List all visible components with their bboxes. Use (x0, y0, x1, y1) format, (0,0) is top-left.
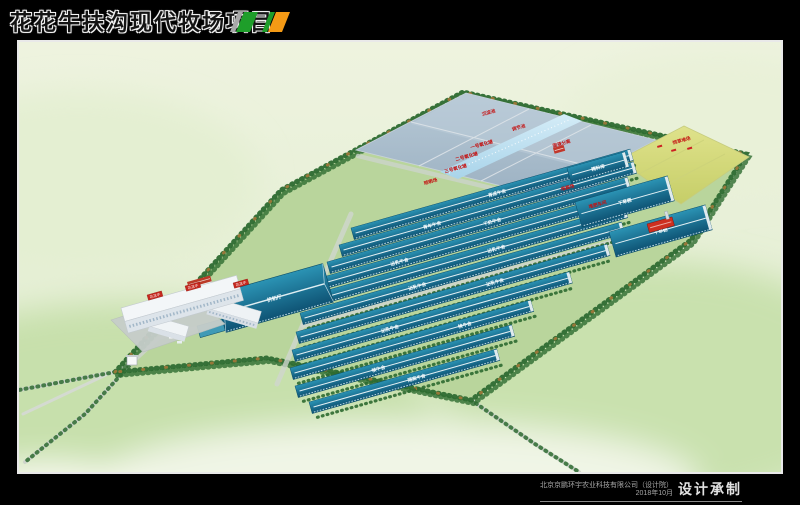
vehicle (177, 341, 182, 344)
logo-stripes (228, 10, 294, 34)
gatehouse (126, 356, 138, 365)
footer-credit-block: 北京京鹏环宇农业科技有限公司（设计院） 2018年10月 设计承制 (540, 479, 742, 502)
design-date: 2018年10月 (636, 490, 673, 499)
site-rendering: 育成牛舍青年牛舍干奶牛舍泌乳牛舍泌乳牛舍泌乳牛舍泌乳牛舍泌乳牛舍犊牛舍犊牛舍隔离… (19, 42, 781, 472)
design-credit: 设计承制 (678, 479, 742, 499)
design-company: 北京京鹏环宇农业科技有限公司（设计院） (540, 482, 673, 491)
presentation-board: { "board": { "title": "花花牛扶沟现代牧场项目", "fo… (0, 0, 800, 505)
render-frame: 育成牛舍青年牛舍干奶牛舍泌乳牛舍泌乳牛舍泌乳牛舍泌乳牛舍泌乳牛舍犊牛舍犊牛舍隔离… (17, 40, 783, 474)
